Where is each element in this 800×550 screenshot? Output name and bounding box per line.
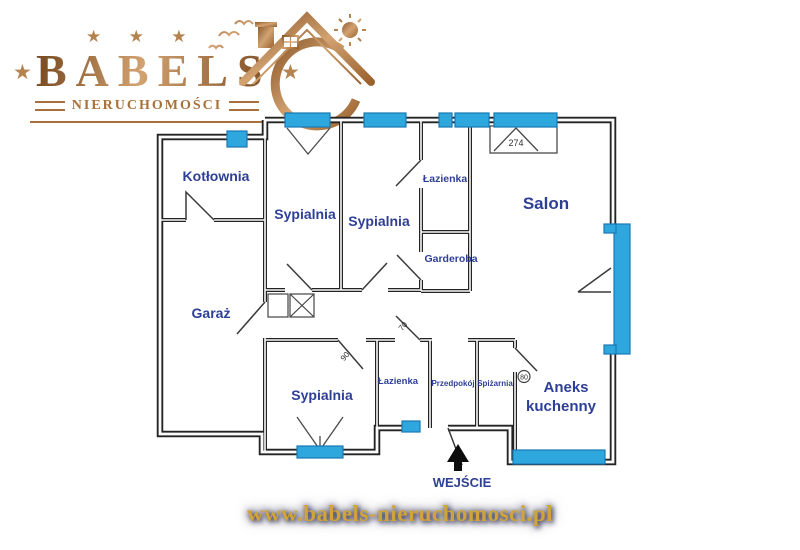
room-label-pantry: Spiżarnia (477, 379, 513, 388)
hall-fixture-x-lines (290, 294, 314, 317)
window-balcony-tab-bottom (604, 345, 616, 354)
entrance-label: WEJŚCIE (433, 475, 492, 490)
room-label-bedroom1: Sypialnia (274, 206, 336, 222)
window-boiler-room (227, 131, 247, 147)
room-label-garage: Garaż (192, 305, 231, 321)
room-label-kitchen-line1: Aneks (543, 379, 588, 396)
window-bathroom-top-a (439, 113, 452, 127)
room-label-bedroom3: Sypialnia (291, 387, 353, 403)
room-label-kitchen-line2: kuchenny (526, 398, 597, 415)
window-kitchen-bottom (513, 450, 605, 464)
window-bathroom-bottom (402, 421, 420, 432)
dim-salon-window: 274 (508, 138, 523, 148)
room-label-hallway: Przedpokój (431, 379, 474, 388)
room-label-wardrobe: Garderoba (424, 253, 477, 265)
hall-fixture (268, 294, 288, 317)
entrance-arrow-icon (447, 444, 469, 471)
window-bedroom3-bottom (297, 446, 343, 458)
room-label-bedroom2: Sypialnia (348, 213, 410, 229)
window-balcony-tab-top (604, 224, 616, 233)
room-label-bathroom-top: Łazienka (423, 173, 468, 185)
window-balcony-door (614, 224, 630, 354)
window-salon-top (494, 113, 557, 127)
dim-bathroom-door: 70 (397, 320, 410, 333)
window-bedroom1-top (285, 113, 330, 127)
room-label-boiler: Kotłownia (183, 168, 250, 184)
dim-pantry-door: 80 (520, 375, 528, 382)
window-bedroom2-top (364, 113, 406, 127)
website-url: www.babels-nieruchomosci.pl (0, 501, 800, 527)
floor-plan: Kotłownia Sypialnia Sypialnia Łazienka G… (0, 0, 800, 550)
real-estate-flyer: ★ ★ ★ ★ ★ BABELS NIERUCHOMOŚCI (0, 0, 800, 550)
dim-bedroom-door: 90 (339, 350, 352, 363)
room-label-bathroom-bottom: Łazienka (378, 376, 419, 387)
window-bathroom-top-b (455, 113, 489, 127)
room-label-living-room: Salon (523, 194, 569, 213)
